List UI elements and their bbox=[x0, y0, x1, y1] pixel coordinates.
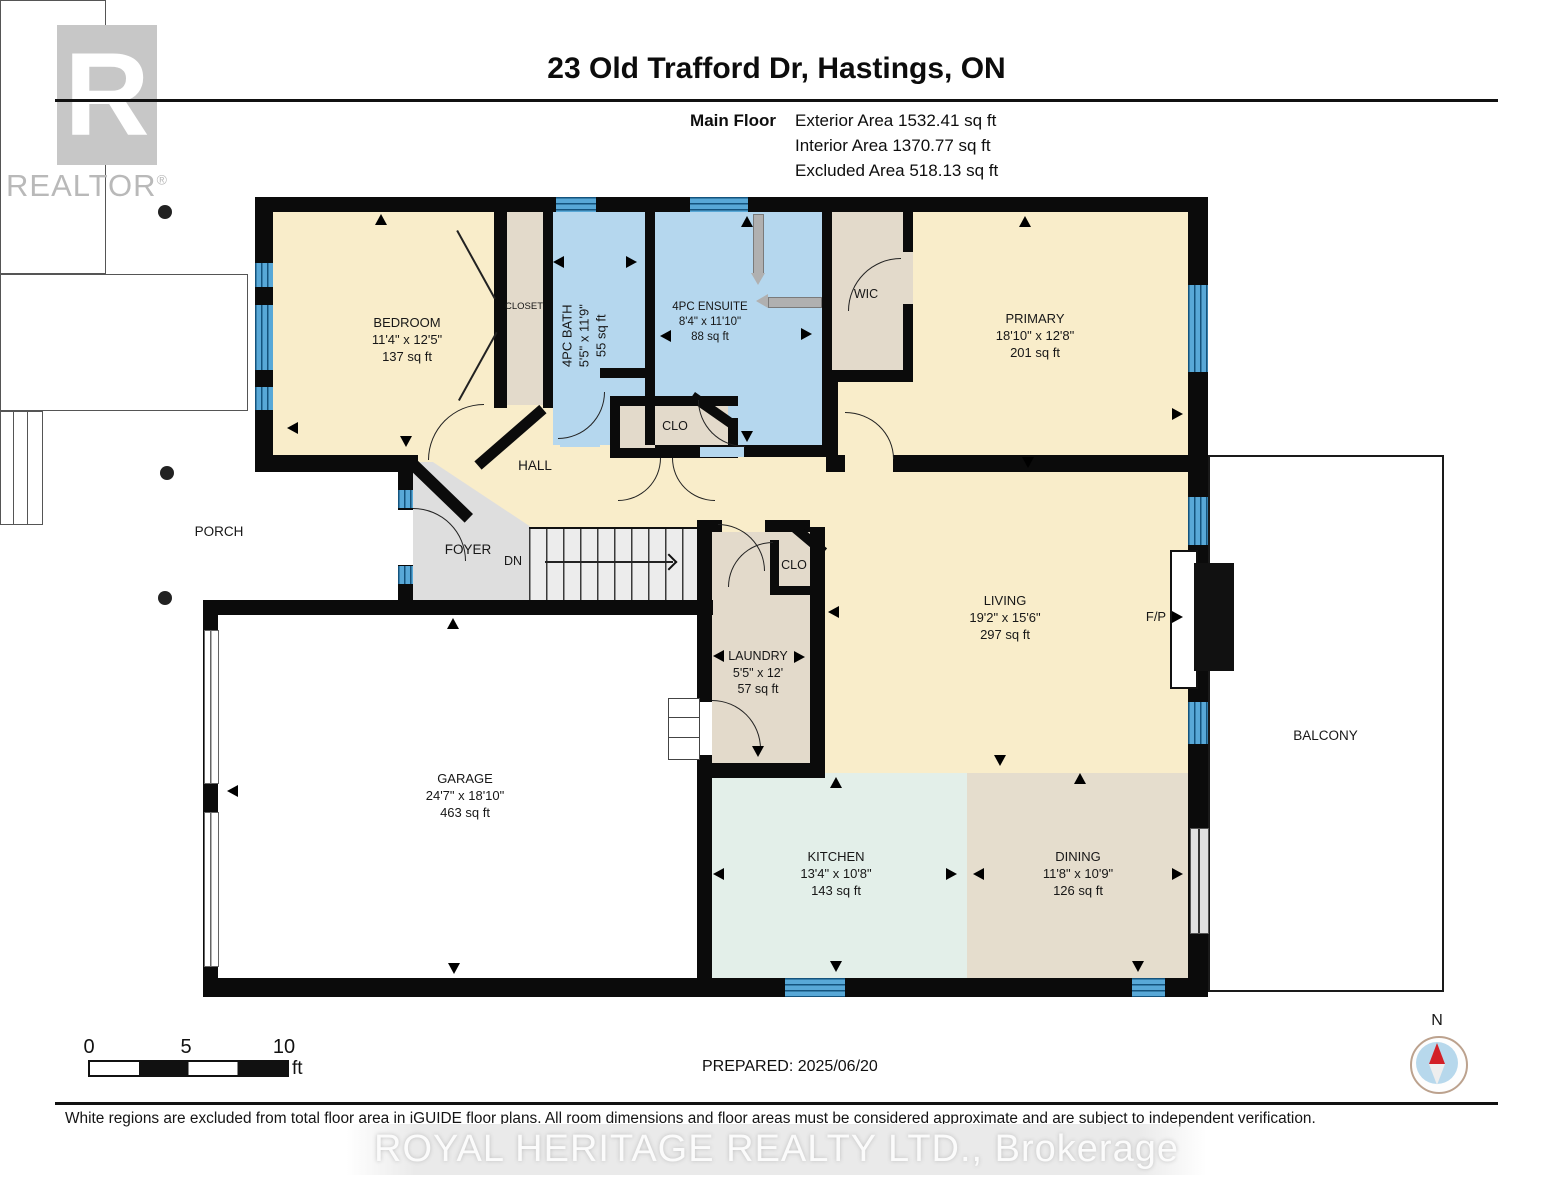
scale-tick-5: 5 bbox=[179, 1036, 193, 1059]
label-fireplace: F/P bbox=[1136, 609, 1176, 624]
direction-arrow bbox=[713, 868, 724, 880]
direction-arrow bbox=[1172, 408, 1183, 420]
porch-post bbox=[160, 466, 174, 480]
direction-arrow bbox=[741, 216, 753, 227]
label-foyer: FOYER bbox=[438, 542, 498, 557]
label-wic: WIC bbox=[841, 287, 891, 301]
wall-laundrycloset-bottom bbox=[770, 586, 820, 595]
window-kitchen bbox=[785, 978, 845, 997]
room-label-ensuite: 4PC ENSUITE8'4" x 11'10"88 sq ft bbox=[625, 300, 795, 346]
wall-laundry-bottom bbox=[697, 763, 825, 778]
shower-bar-vertical bbox=[753, 214, 764, 274]
window-living-2 bbox=[1188, 702, 1208, 744]
porch-steps bbox=[0, 411, 43, 525]
floor-plan-page: R REALTOR® 23 Old Trafford Dr, Hastings,… bbox=[0, 0, 1553, 1200]
porch-area bbox=[0, 274, 248, 411]
fireplace-box bbox=[1194, 563, 1234, 671]
wall-primary-bottom-a bbox=[826, 455, 845, 472]
registered-mark: ® bbox=[157, 172, 168, 188]
window-bath bbox=[556, 197, 596, 212]
brokerage-watermark: ROYAL HERITAGE REALTY LTD., Brokerage bbox=[346, 1124, 1207, 1175]
prepared-date: PREPARED: 2025/06/20 bbox=[702, 1058, 878, 1076]
room-label-kitchen: KITCHEN13'4" x 10'8"143 sq ft bbox=[751, 848, 921, 899]
room-label-dining: DINING11'8" x 10'9"126 sq ft bbox=[993, 848, 1163, 899]
scale-tick-0: 0 bbox=[82, 1036, 96, 1059]
garage-door-panel bbox=[204, 630, 219, 784]
window-ensuite bbox=[690, 197, 748, 212]
realtor-logo: R bbox=[57, 25, 157, 165]
window-foyer-2 bbox=[398, 566, 413, 584]
interior-area: Interior Area 1370.77 sq ft bbox=[795, 136, 991, 156]
garage-door-panel bbox=[204, 812, 219, 967]
direction-arrow bbox=[828, 606, 839, 618]
window-dining bbox=[1132, 978, 1165, 997]
direction-arrow bbox=[400, 436, 412, 447]
page-title: 23 Old Trafford Dr, Hastings, ON bbox=[0, 52, 1553, 86]
direction-arrow bbox=[752, 746, 764, 757]
window-living-1 bbox=[1188, 497, 1208, 545]
front-door-opening bbox=[398, 510, 413, 565]
window-bedroom-3 bbox=[255, 387, 273, 410]
window-bedroom-1 bbox=[255, 263, 273, 287]
label-dn: DN bbox=[498, 554, 528, 568]
scale-bar bbox=[88, 1060, 289, 1077]
direction-arrow bbox=[1019, 216, 1031, 227]
wall-bedroom-bottom bbox=[255, 455, 418, 472]
label-clo-hall: CLO bbox=[650, 419, 700, 433]
direction-arrow bbox=[1074, 773, 1086, 784]
direction-arrow bbox=[1132, 961, 1144, 972]
direction-arrow bbox=[994, 755, 1006, 766]
scale-unit: ft bbox=[292, 1058, 303, 1080]
label-closet: CLOSET bbox=[496, 301, 552, 312]
direction-arrow bbox=[973, 868, 984, 880]
room-label-bath: 4PC BATH5'5" x 11'9"55 sq ft bbox=[558, 271, 609, 401]
label-balcony: BALCONY bbox=[1283, 728, 1368, 743]
room-label-living: LIVING19'2" x 15'6"297 sq ft bbox=[920, 592, 1090, 643]
direction-arrow bbox=[448, 963, 460, 974]
header-divider bbox=[55, 99, 1498, 102]
shower-bar-arrow bbox=[751, 273, 765, 285]
room-label-garage: GARAGE24'7" x 18'10"463 sq ft bbox=[380, 770, 550, 821]
footer-divider bbox=[55, 1102, 1498, 1105]
wall-primary-bottom-b bbox=[893, 455, 1188, 472]
direction-arrow bbox=[553, 256, 564, 268]
direction-arrow bbox=[741, 431, 753, 442]
window-foyer-1 bbox=[398, 490, 413, 508]
direction-arrow bbox=[801, 328, 812, 340]
realtor-logo-text: REALTOR® bbox=[6, 168, 186, 204]
excluded-area: Excluded Area 518.13 sq ft bbox=[795, 161, 998, 181]
window-primary bbox=[1188, 285, 1208, 372]
direction-arrow bbox=[375, 214, 387, 225]
staircase bbox=[529, 527, 701, 606]
scale-tick-10: 10 bbox=[271, 1036, 297, 1059]
direction-arrow bbox=[227, 785, 238, 797]
ensuite-door-opening bbox=[700, 447, 744, 457]
compass-north-label: N bbox=[1421, 1012, 1453, 1030]
wall-bottom bbox=[203, 978, 1208, 997]
wall-wic-bottom bbox=[826, 370, 913, 382]
porch-post bbox=[158, 205, 172, 219]
compass-needle-north bbox=[1429, 1043, 1445, 1064]
direction-arrow bbox=[447, 618, 459, 629]
room-label-primary: PRIMARY18'10" x 12'8"201 sq ft bbox=[950, 310, 1120, 361]
label-hall: HALL bbox=[505, 458, 565, 473]
direction-arrow bbox=[1022, 457, 1034, 468]
wic-door-opening bbox=[903, 252, 913, 304]
balcony-area bbox=[1208, 455, 1444, 992]
bath-door-opening bbox=[560, 437, 600, 447]
direction-arrow bbox=[830, 961, 842, 972]
room-label-bedroom: BEDROOM11'4" x 12'5"137 sq ft bbox=[322, 314, 492, 365]
direction-arrow bbox=[626, 256, 637, 268]
label-clo-laundry: CLO bbox=[772, 558, 816, 572]
direction-arrow bbox=[946, 868, 957, 880]
room-label-laundry: LAUNDRY5'5" x 12'57 sq ft bbox=[673, 648, 843, 698]
direction-arrow bbox=[287, 422, 298, 434]
back-door-steps bbox=[668, 698, 700, 760]
wall-garage-top bbox=[203, 600, 713, 615]
porch-post bbox=[158, 591, 172, 605]
stair-direction-line bbox=[545, 561, 673, 563]
window-bedroom-2 bbox=[255, 305, 273, 370]
floor-label: Main Floor bbox=[560, 111, 776, 131]
sliding-door bbox=[1190, 828, 1209, 934]
compass-needle-south bbox=[1429, 1064, 1445, 1085]
direction-arrow bbox=[1172, 868, 1183, 880]
label-porch: PORCH bbox=[184, 524, 254, 539]
direction-arrow bbox=[830, 777, 842, 788]
exterior-area: Exterior Area 1532.41 sq ft bbox=[795, 111, 996, 131]
